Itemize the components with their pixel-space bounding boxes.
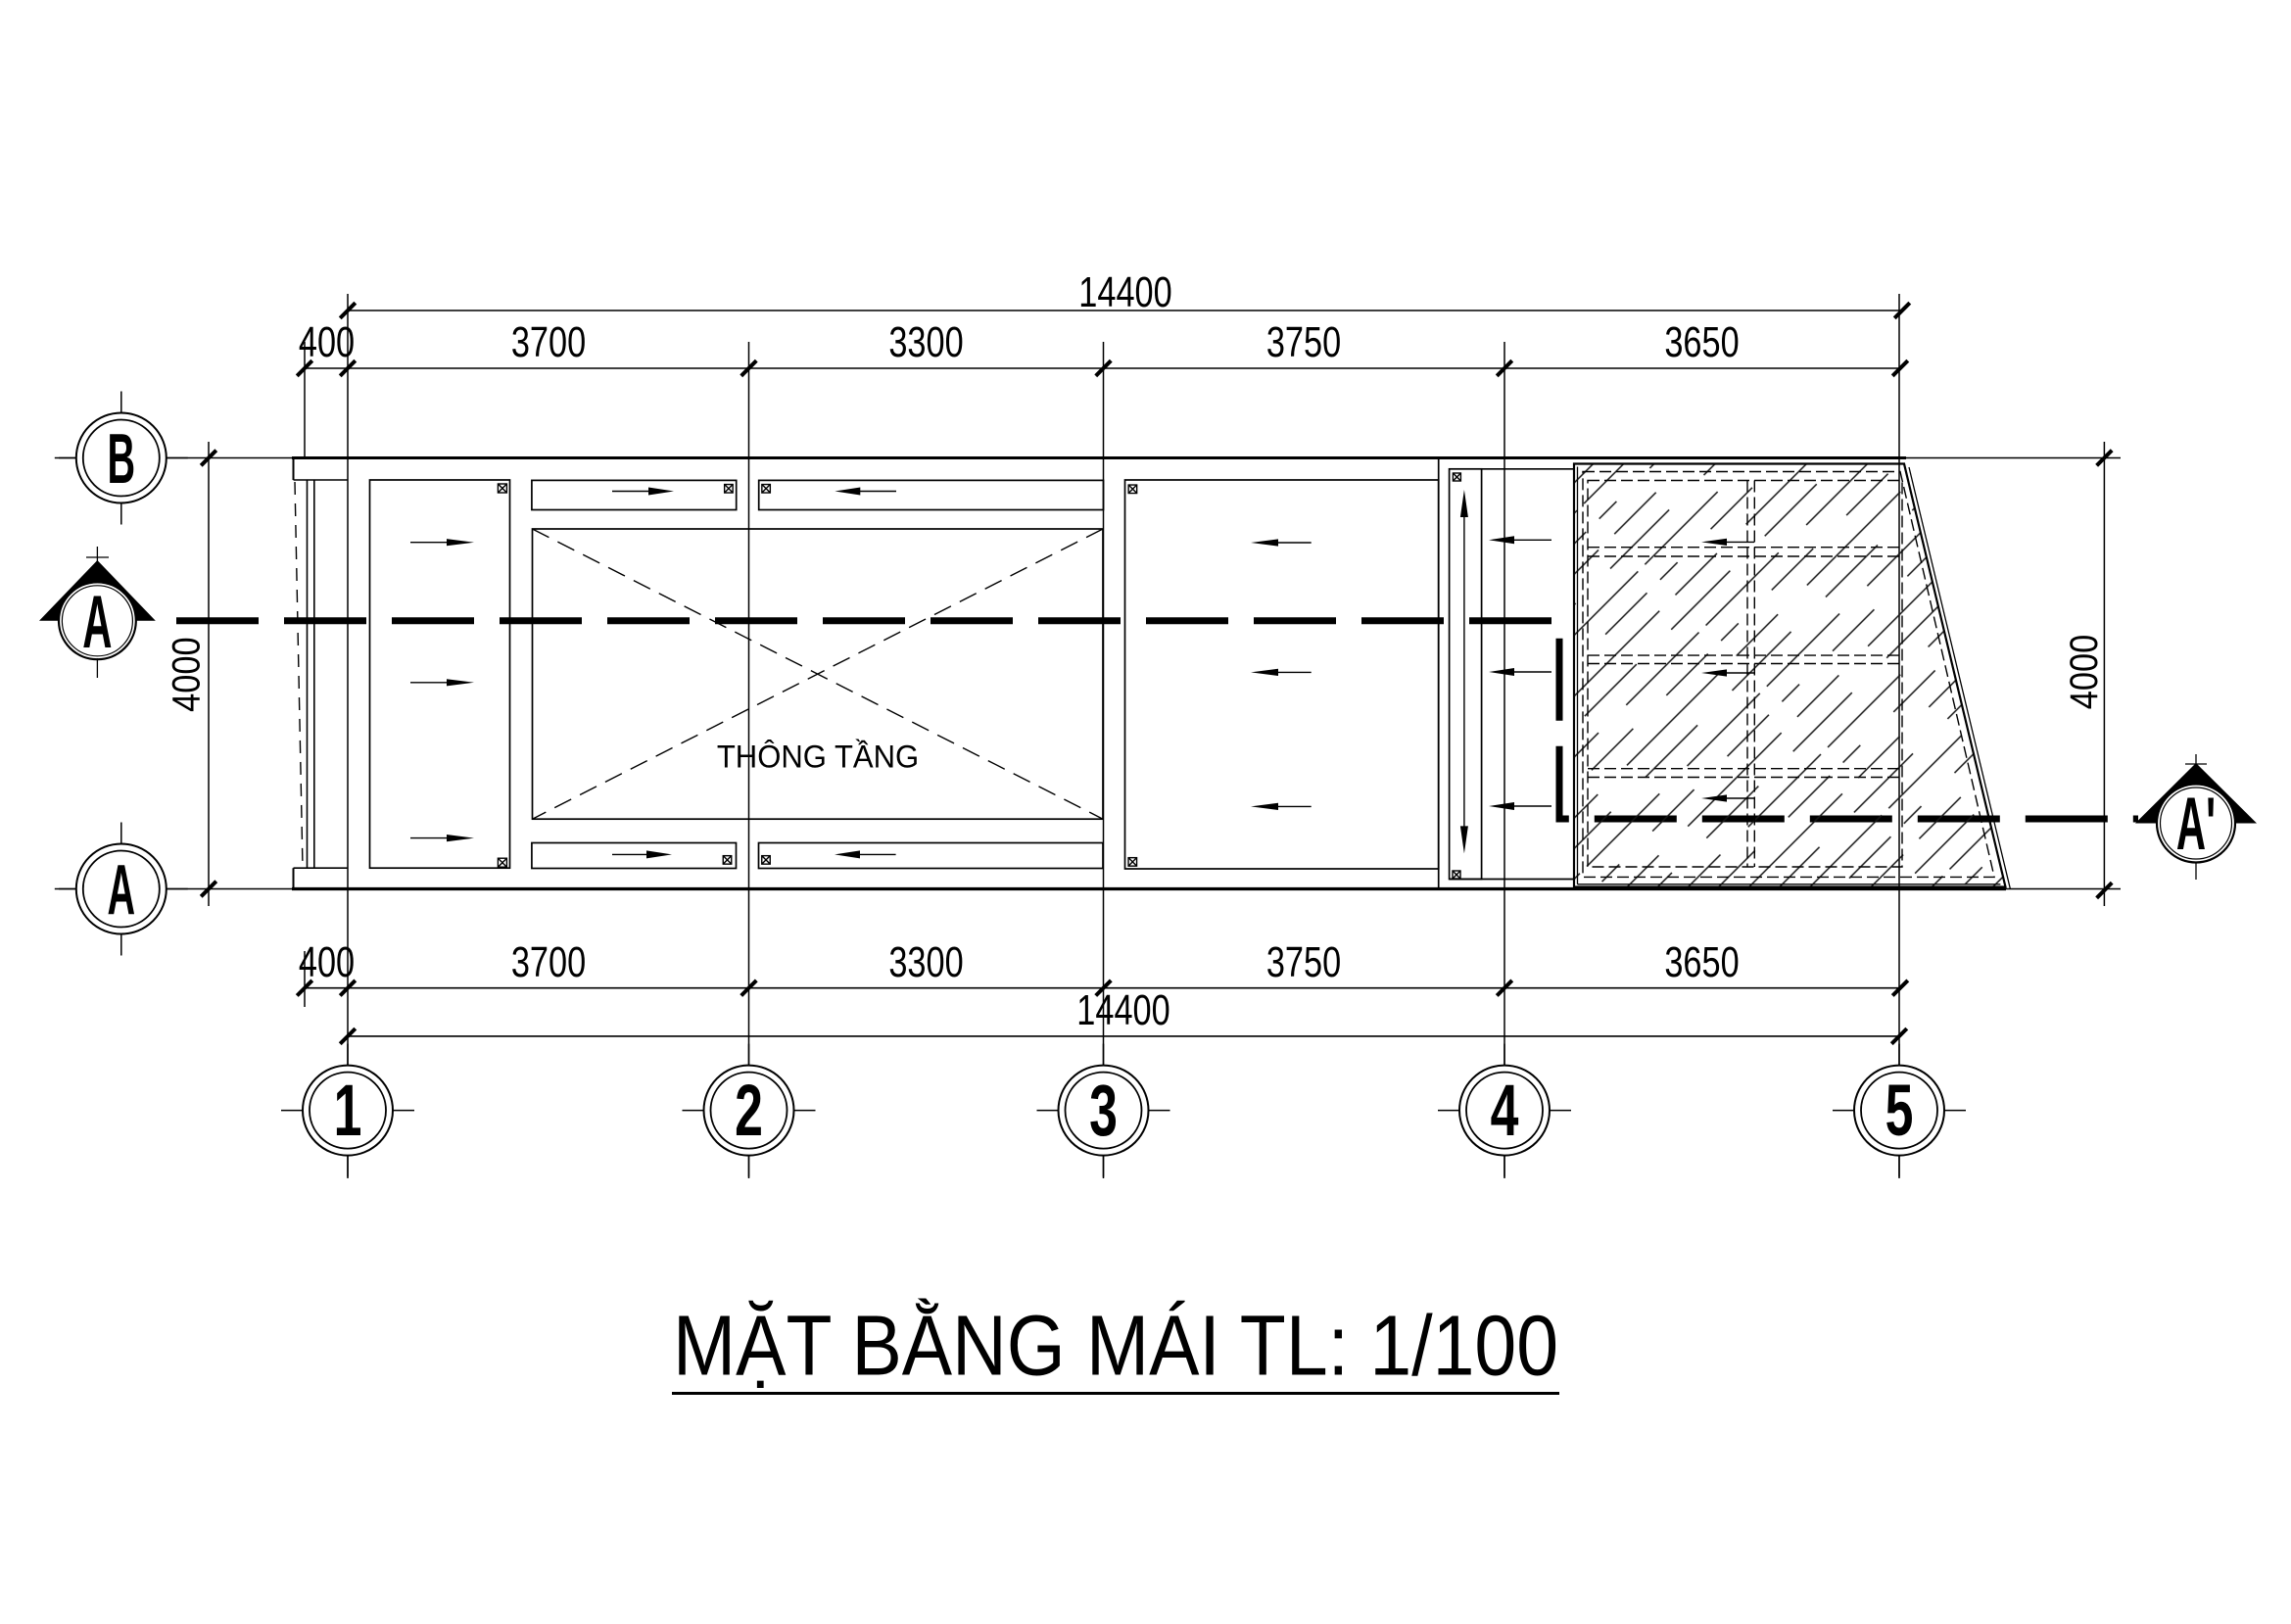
svg-text:3300: 3300 — [888, 938, 963, 986]
svg-text:MẶT BẰNG MÁI TL: 1/100: MẶT BẰNG MÁI TL: 1/100 — [673, 1299, 1558, 1393]
svg-text:14400: 14400 — [1076, 986, 1169, 1034]
svg-text:3650: 3650 — [1664, 938, 1739, 986]
svg-text:4000: 4000 — [164, 637, 208, 712]
svg-text:3750: 3750 — [1266, 938, 1341, 986]
svg-text:1: 1 — [334, 1070, 362, 1151]
svg-text:400: 400 — [299, 938, 355, 986]
svg-text:4000: 4000 — [2062, 635, 2106, 710]
svg-text:THÔNG TẦNG: THÔNG TẦNG — [717, 739, 919, 775]
svg-text:3700: 3700 — [511, 938, 586, 986]
svg-text:4: 4 — [1491, 1070, 1519, 1151]
svg-text:A: A — [107, 851, 135, 931]
svg-text:2: 2 — [735, 1070, 763, 1151]
svg-text:A: A — [82, 580, 112, 664]
svg-text:5: 5 — [1885, 1070, 1914, 1151]
svg-text:3700: 3700 — [511, 318, 586, 366]
svg-text:A': A' — [2176, 782, 2216, 866]
svg-text:3: 3 — [1089, 1070, 1118, 1151]
svg-text:3300: 3300 — [888, 318, 963, 366]
svg-text:3650: 3650 — [1664, 318, 1739, 366]
svg-text:400: 400 — [299, 318, 355, 366]
svg-text:B: B — [107, 420, 135, 500]
svg-text:3750: 3750 — [1266, 318, 1341, 366]
svg-text:14400: 14400 — [1078, 268, 1171, 316]
